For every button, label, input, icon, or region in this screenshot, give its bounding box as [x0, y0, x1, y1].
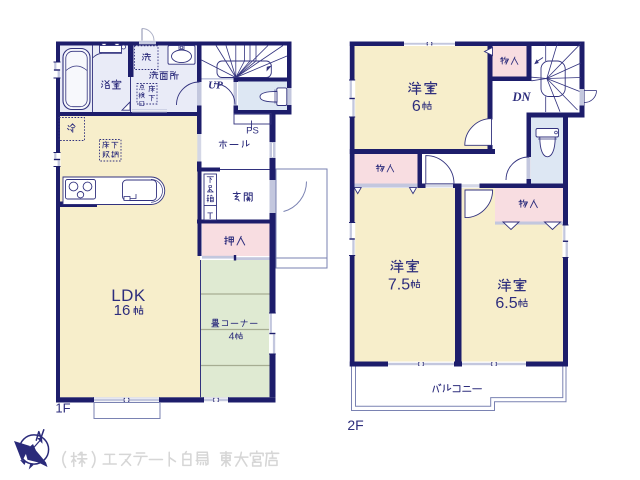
- svg-text:PS: PS: [246, 126, 259, 137]
- svg-text:1F: 1F: [55, 401, 70, 416]
- svg-text:DN: DN: [511, 90, 531, 104]
- svg-text:2F: 2F: [347, 417, 363, 433]
- svg-text:6: 6: [412, 98, 421, 115]
- svg-text:UP: UP: [208, 79, 223, 91]
- svg-text:4: 4: [229, 330, 235, 342]
- svg-text:7.5: 7.5: [388, 276, 410, 293]
- svg-text:6.5: 6.5: [495, 295, 517, 312]
- svg-text:16: 16: [114, 302, 131, 319]
- svg-text:T: T: [207, 211, 213, 222]
